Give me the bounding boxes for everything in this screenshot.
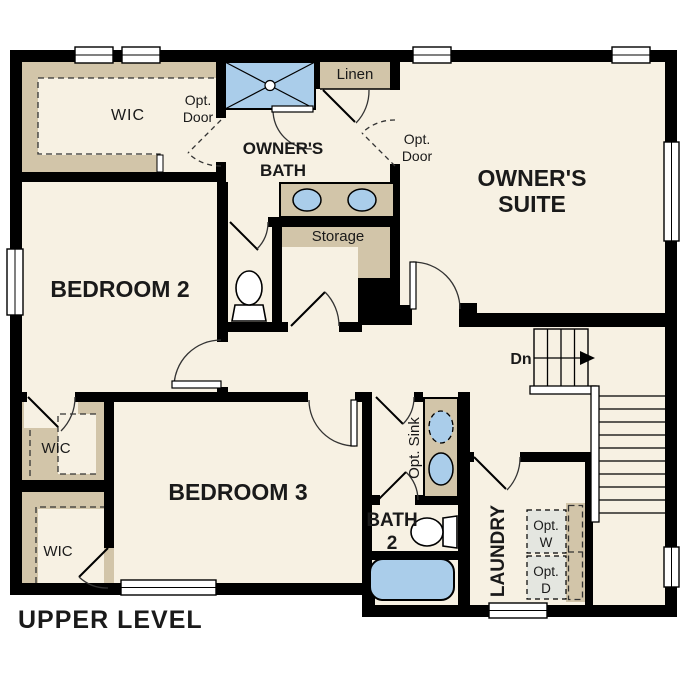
sink — [348, 189, 376, 211]
closet-shelf-edge — [157, 155, 163, 172]
window — [122, 47, 160, 63]
label-laundry: LAUNDRY — [488, 505, 509, 598]
floor-plan-page: WIC BEDROOM 2 OWNER'S BATH Linen Storage… — [0, 0, 687, 687]
label-linen: Linen — [337, 66, 374, 83]
label-opt-door-suite-1: Opt. — [404, 131, 430, 147]
window — [664, 547, 679, 587]
label-owners-bath-2: BATH — [260, 161, 306, 180]
sink — [429, 453, 453, 485]
label-owners-suite-1: OWNER'S — [478, 165, 587, 191]
label-wic-owners: WIC — [111, 107, 145, 124]
window — [489, 603, 547, 618]
window — [413, 47, 451, 63]
label-opt-door-wic-1: Opt. — [185, 92, 211, 108]
label-opt-dryer-2: D — [541, 581, 551, 596]
window — [7, 249, 23, 315]
label-storage: Storage — [312, 228, 365, 245]
window — [664, 142, 679, 241]
shower-drain — [265, 81, 275, 91]
bath2-toilet — [411, 516, 457, 548]
sink — [293, 189, 321, 211]
label-owners-suite-2: SUITE — [498, 191, 566, 217]
label-wic-bedroom2: WIC — [41, 440, 70, 457]
chase — [358, 278, 400, 325]
laundry-cabinet — [566, 503, 585, 602]
label-bath-2-1: BATH — [366, 510, 417, 531]
label-bedroom-3: BEDROOM 3 — [168, 479, 307, 505]
window — [75, 47, 113, 63]
label-stairs-down: Dn — [510, 351, 531, 368]
label-opt-sink: Opt. Sink — [406, 417, 423, 479]
label-owners-bath-1: OWNER'S — [243, 139, 324, 158]
optional-sink — [429, 411, 453, 443]
owners-vanity — [280, 183, 394, 217]
shower — [225, 62, 315, 109]
bathtub — [370, 559, 454, 600]
label-wic-bedroom3: WIC — [43, 543, 72, 560]
window — [612, 47, 650, 63]
label-bath-2-2: 2 — [387, 533, 398, 554]
floor-plan-drawing: WIC BEDROOM 2 OWNER'S BATH Linen Storage… — [0, 0, 687, 687]
label-opt-washer-2: W — [540, 535, 553, 550]
bath2-vanity — [424, 398, 458, 497]
label-bedroom-2: BEDROOM 2 — [50, 276, 189, 302]
label-opt-door-wic-2: Door — [183, 109, 214, 125]
page-title: UPPER LEVEL — [18, 606, 203, 634]
stair-railing — [530, 386, 596, 394]
label-opt-washer-1: Opt. — [533, 518, 559, 533]
closet-wic-bedroom3 — [22, 492, 114, 583]
stair-railing — [591, 386, 599, 522]
window — [121, 580, 216, 595]
label-opt-dryer-1: Opt. — [533, 564, 559, 579]
label-opt-door-suite-2: Door — [402, 148, 433, 164]
